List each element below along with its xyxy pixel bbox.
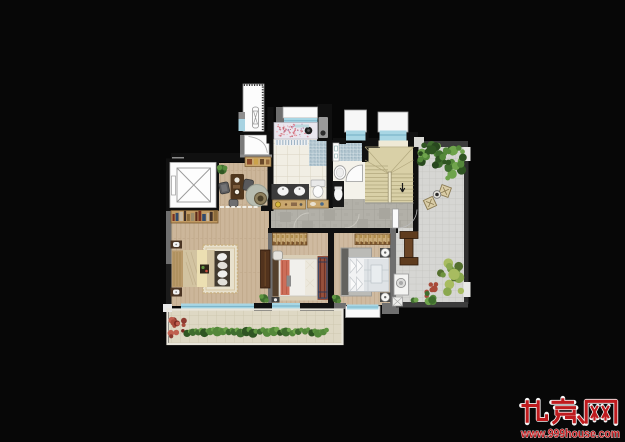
svg-text:www.999house.com: www.999house.com	[520, 426, 620, 440]
